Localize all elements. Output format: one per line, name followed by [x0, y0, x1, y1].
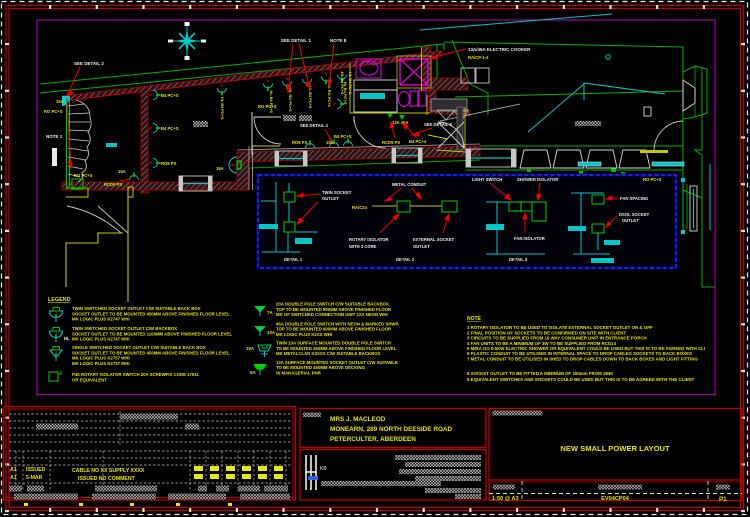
svg-text:RO PC+S: RO PC+S — [74, 173, 93, 178]
svg-text:NOTE 1: NOTE 1 — [46, 134, 63, 139]
svg-text:DETAIL 2: DETAIL 2 — [396, 257, 415, 262]
svg-text:TO BE MOUNTED 450MM ABOVE FINI: TO BE MOUNTED 450MM ABOVE FINISHED FLOOR… — [276, 346, 397, 351]
svg-text:MK LOGIC PLUS K2XX WHI: MK LOGIC PLUS K2XX WHI — [276, 332, 332, 337]
svg-text:P1: P1 — [719, 496, 727, 503]
svg-text:ISSUED NO COMMENT: ISSUED NO COMMENT — [78, 476, 136, 482]
svg-text:TWIN SWITCHED SOCKET OUTLET C/: TWIN SWITCHED SOCKET OUTLET C/W BACKBOX — [72, 326, 177, 331]
svg-text:HL B4 PC+S: HL B4 PC+S — [348, 72, 353, 95]
svg-text:HL RO PC+S: HL RO PC+S — [288, 88, 293, 112]
svg-text:KB: KB — [320, 466, 327, 472]
svg-text:B4 PC+S: B4 PC+S — [161, 126, 179, 131]
svg-text:RCD9 PS: RCD9 PS — [382, 140, 400, 145]
svg-text:NEW SMALL POWER LAYOUT: NEW SMALL POWER LAYOUT — [560, 444, 670, 453]
svg-text:HL B4 PC+S: HL B4 PC+S — [340, 72, 345, 95]
svg-text:9 EQUIVALENT SWITCHES AND SOC: 9 EQUIVALENT SWITCHES AND SOCKETS COULD … — [467, 377, 695, 382]
svg-text:RA/C24: RA/C24 — [352, 205, 368, 210]
svg-text:RO PC+S: RO PC+S — [643, 177, 662, 182]
svg-text:SHOWER ISOLATOR: SHOWER ISOLATOR — [517, 177, 558, 182]
svg-text:15A: 15A — [216, 166, 224, 171]
svg-text:PETERCULTER, ABERDEEN: PETERCULTER, ABERDEEN — [330, 436, 416, 443]
svg-text:FAN ISOLATOR: FAN ISOLATOR — [514, 236, 545, 241]
svg-text:RO9 PS: RO9 PS — [292, 140, 308, 145]
svg-text:5-MAR: 5-MAR — [26, 475, 43, 481]
svg-text:15A: 15A — [326, 140, 334, 145]
svg-text:B4 PC+4: B4 PC+4 — [409, 139, 427, 144]
svg-text:METAL CONDUIT: METAL CONDUIT — [392, 182, 427, 187]
svg-text:TWIN SOCKET: TWIN SOCKET — [322, 190, 352, 195]
svg-text:TOP TO BE MOUNTED 900MM ABOVE: TOP TO BE MOUNTED 900MM ABOVE FINISHED F… — [276, 307, 392, 312]
svg-text:ROTARY ISOLATOR: ROTARY ISOLATOR — [349, 237, 389, 242]
svg-text:MONEARN, 289 NORTH DEESIDE ROA: MONEARN, 289 NORTH DEESIDE ROAD — [330, 426, 453, 433]
svg-text:B4 PC+S: B4 PC+S — [161, 93, 179, 98]
svg-text:MK LOGIC PLUS K2747 WHI: MK LOGIC PLUS K2747 WHI — [72, 317, 130, 322]
svg-text:A1: A1 — [10, 475, 17, 481]
svg-text:SOCKET OUTLET TO BE MOUNTED 11: SOCKET OUTLET TO BE MOUNTED 1100MM ABOVE… — [72, 331, 232, 336]
svg-text:7 METAL CONDUIT TO BE UTILISE: 7 METAL CONDUIT TO BE UTILISED IN SHED T… — [467, 356, 698, 361]
svg-text:LIGHT SWITCH: LIGHT SWITCH — [472, 177, 502, 182]
svg-text:45A DOUBLE POLE SWITCH WITH NE: 45A DOUBLE POLE SWITCH WITH NEON & MARKE… — [276, 321, 399, 326]
svg-text:OUTLET: OUTLET — [413, 244, 430, 249]
svg-text:ISSUED: ISSUED — [26, 467, 46, 473]
svg-text:FAN SPACING: FAN SPACING — [620, 196, 648, 201]
svg-text:SOCKET OUTLET TO BE MOUNTED 45: SOCKET OUTLET TO BE MOUNTED 450MM ABOVE … — [72, 350, 230, 355]
svg-text:8 SOCKET OUTLET TO BE FITTED: 8 SOCKET OUTLET TO BE FITTED A MINIMUM O… — [467, 371, 614, 376]
svg-text:HL: HL — [64, 336, 70, 341]
svg-text:DSOL SOCKET: DSOL SOCKET — [619, 212, 650, 217]
svg-text:SOCKET OUTLET TO BE MOUNTED 45: SOCKET OUTLET TO BE MOUNTED 450MM ABOVE … — [72, 311, 230, 316]
svg-text:DETAIL 3: DETAIL 3 — [509, 257, 528, 262]
svg-text:EV04CP04: EV04CP04 — [601, 496, 630, 502]
svg-text:RO PC+S: RO PC+S — [258, 104, 277, 109]
svg-text:TWIN SWITCHED SOCKET OUTLET C/: TWIN SWITCHED SOCKET OUTLET C/W SUITABLE… — [72, 306, 201, 311]
svg-text:20A DOUBLE POLE SWITCH C/W SUI: 20A DOUBLE POLE SWITCH C/W SUITABLE BACK… — [276, 302, 389, 307]
svg-text:HL B4 PC+S: HL B4 PC+S — [269, 91, 274, 114]
svg-text:MK OF SWITCHED CONNECTION UNIT: MK OF SWITCHED CONNECTION UNIT 1XX NEON … — [276, 312, 388, 317]
svg-text:RO9 PS: RO9 PS — [161, 161, 177, 166]
svg-text:WITH 3 CORE: WITH 3 CORE — [349, 244, 377, 249]
svg-text:NOTE: NOTE — [467, 316, 482, 322]
svg-text:7A: 7A — [267, 310, 273, 315]
svg-text:IN MANAGERIAL PNR: IN MANAGERIAL PNR — [276, 370, 322, 375]
svg-text:LEGEND: LEGEND — [48, 297, 71, 303]
svg-text:SEE DETAIL 1: SEE DETAIL 1 — [281, 38, 311, 43]
svg-text:MK LOGIC PLUS K2747 WHI: MK LOGIC PLUS K2747 WHI — [72, 337, 130, 342]
svg-text:SEE DETAIL 2: SEE DETAIL 2 — [74, 61, 104, 66]
svg-text:EXTERNAL SOCKET: EXTERNAL SOCKET — [413, 237, 455, 242]
svg-text:15A: 15A — [56, 99, 64, 104]
svg-text:SINGLE SWITCHED SOCKET OUTLET: SINGLE SWITCHED SOCKET OUTLET C/W SUITAB… — [72, 345, 206, 350]
svg-text:CABLE NO XX SUPPLY XXXX: CABLE NO XX SUPPLY XXXX — [72, 468, 145, 474]
svg-text:TOP TO BE MOUNTED 900MM ABOVE: TOP TO BE MOUNTED 900MM ABOVE FINISHED F… — [276, 327, 392, 332]
svg-text:OR EQUIVALENT: OR EQUIVALENT — [72, 377, 107, 382]
svg-text:NOTE 8: NOTE 8 — [330, 38, 347, 43]
svg-text:HL B4 PC+S: HL B4 PC+S — [220, 97, 225, 120]
svg-text:TO BE MOUNTED 450MM ABOVE DECK: TO BE MOUNTED 450MM ABOVE DECKING — [276, 365, 365, 370]
svg-text:RO PC+S: RO PC+S — [44, 109, 63, 114]
svg-text:RA/CP-1-4: RA/CP-1-4 — [468, 55, 489, 60]
svg-text:SEE DETAIL 4: SEE DETAIL 4 — [300, 123, 328, 128]
svg-text:A1: A1 — [10, 467, 17, 473]
svg-text:MK METALCLAD K2XXX C/W SUITABL: MK METALCLAD K2XXX C/W SUITABLE BACKBOX — [276, 351, 381, 356]
svg-text:OUTLET: OUTLET — [622, 218, 639, 223]
svg-text:MK LOGIC PLUS K2737 WHI: MK LOGIC PLUS K2737 WHI — [72, 361, 130, 366]
svg-text:MK LOGIC PLUS K2757 WHI: MK LOGIC PLUS K2757 WHI — [72, 356, 130, 361]
svg-text:5A: 5A — [250, 370, 256, 375]
svg-text:B4 PC+S: B4 PC+S — [334, 134, 352, 139]
svg-text:OUTLET: OUTLET — [322, 196, 339, 201]
svg-text:RCD9 PS: RCD9 PS — [104, 182, 122, 187]
svg-text:13A/45A ELECTRIC COOKER: 13A/45A ELECTRIC COOKER — [468, 47, 531, 52]
svg-text:TWIN 13A SURFACE MOUNTED DOUBL: TWIN 13A SURFACE MOUNTED DOUBLE POLE SWI… — [276, 341, 391, 346]
svg-text:HL RO PC+S: HL RO PC+S — [327, 84, 332, 108]
svg-text:MRS J. MACLEOD: MRS J. MACLEOD — [330, 416, 386, 423]
svg-text:15A: 15A — [246, 346, 255, 351]
svg-text:DETAIL 1: DETAIL 1 — [284, 257, 303, 262]
svg-text:10A: 10A — [267, 330, 276, 335]
svg-text:15A: 15A — [118, 169, 126, 174]
svg-text:P45 ROTARY ISOLATOR SWITCH 20A: P45 ROTARY ISOLATOR SWITCH 20A SCREWFIX … — [72, 372, 199, 377]
svg-text:1:50 @ A3: 1:50 @ A3 — [492, 496, 519, 502]
